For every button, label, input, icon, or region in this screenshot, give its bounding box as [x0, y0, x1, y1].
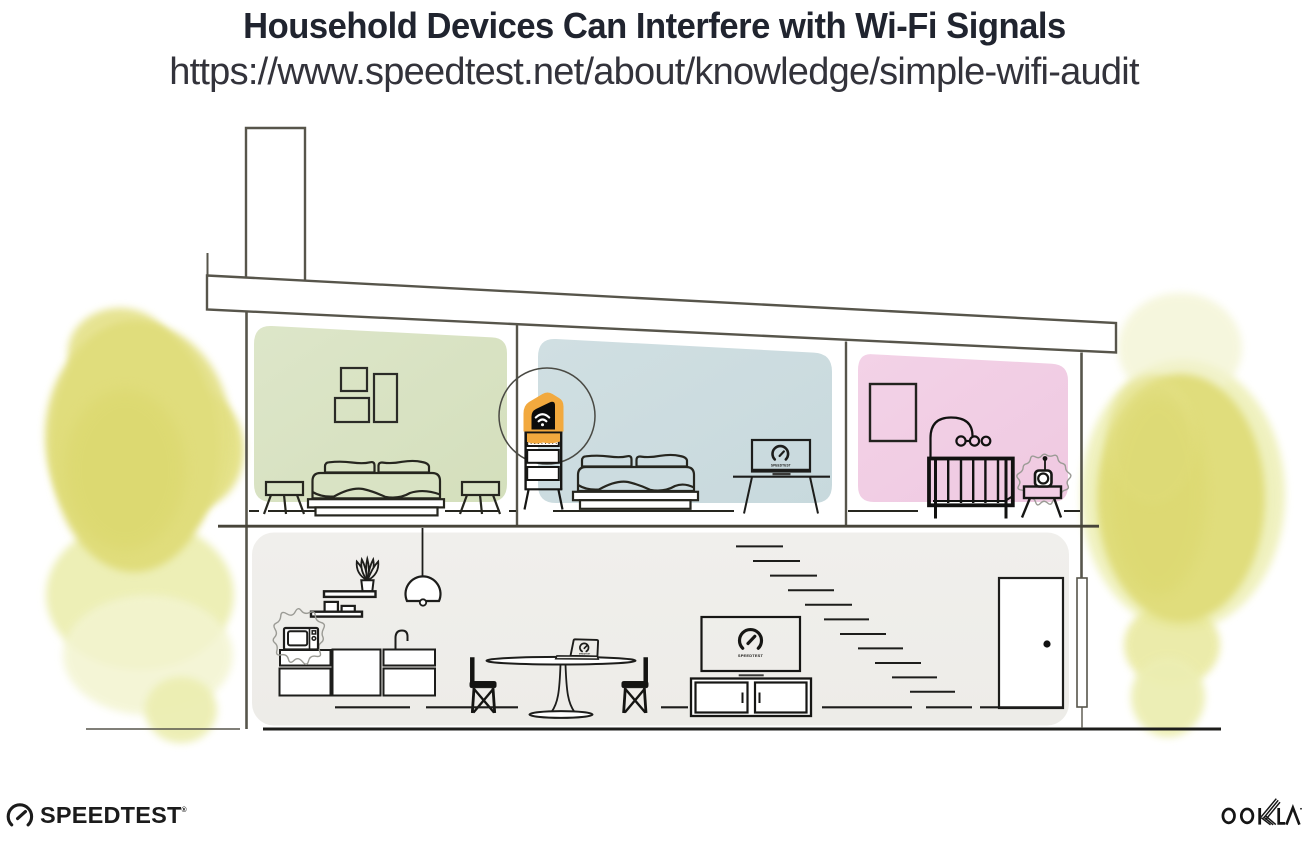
svg-text:SPEEDTEST: SPEEDTEST — [771, 463, 791, 467]
svg-text:SPEEDTEST: SPEEDTEST — [738, 653, 764, 658]
svg-text:SPEEDTEST: SPEEDTEST — [579, 654, 591, 656]
